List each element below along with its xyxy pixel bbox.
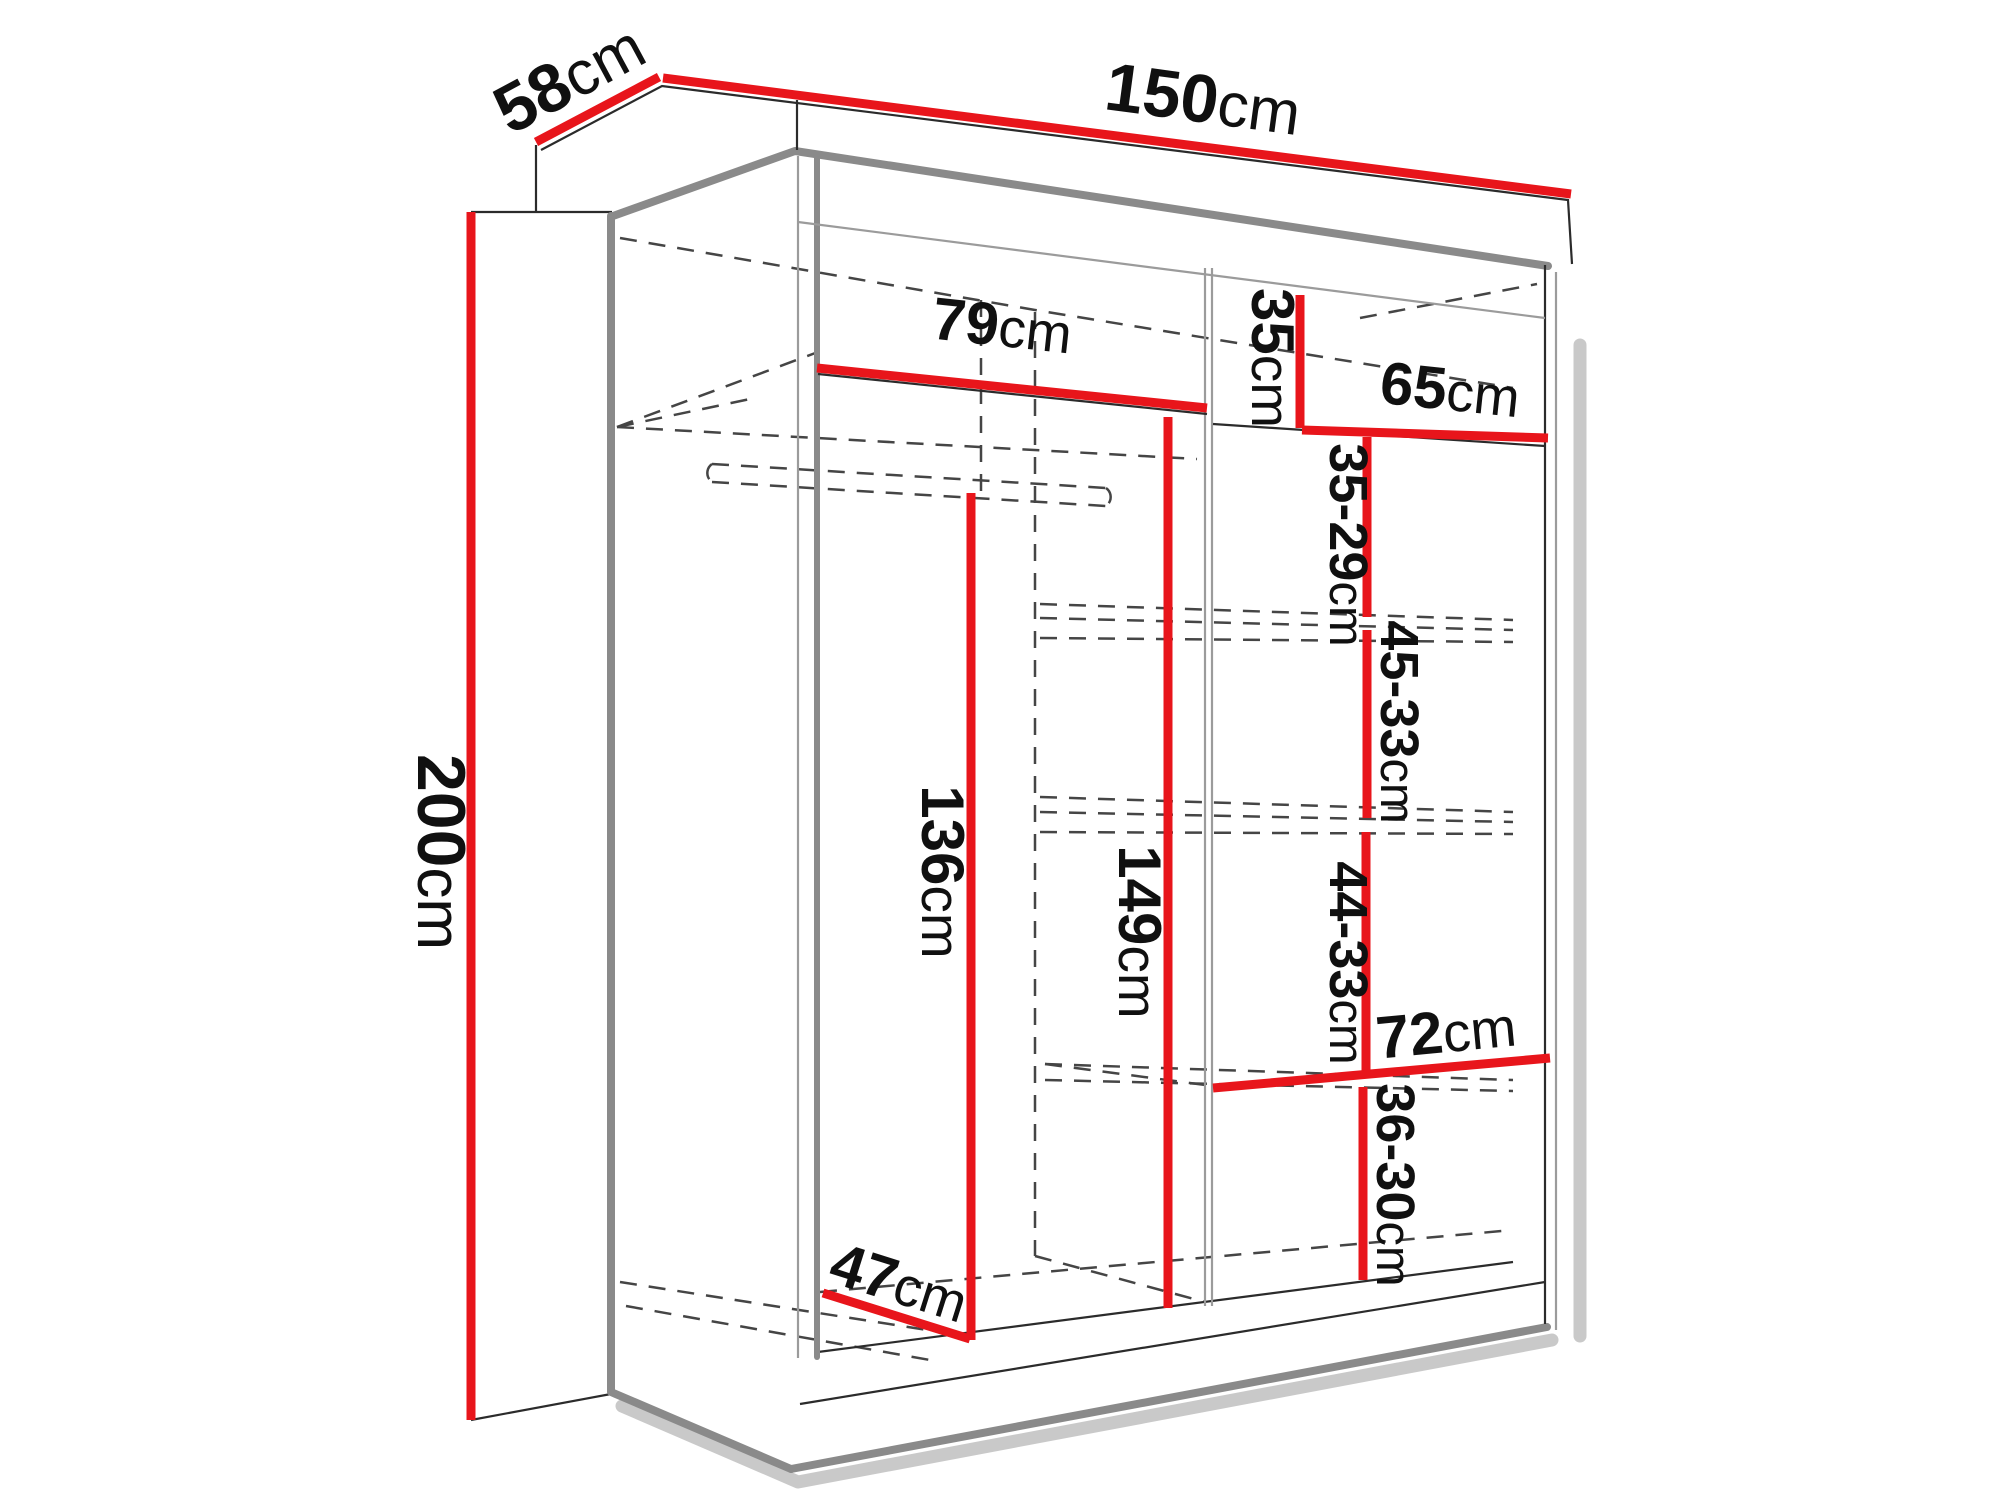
hanging-rod-right-cap	[1106, 488, 1111, 506]
ext-line-bottom	[471, 1394, 611, 1420]
dim-top-right-cubby-height-label: 35cm	[1239, 288, 1306, 428]
cast-shadow	[622, 345, 1580, 1482]
dim-right-gap-middle-label: 45-33cm	[1369, 620, 1429, 823]
hanging-rod-left-cap	[707, 464, 712, 482]
dim-center-interior-height-label: 149cm	[1106, 845, 1173, 1018]
hanging-rod	[707, 464, 1110, 506]
dim-bottom-right-gap-label: 36-30cm	[1365, 1083, 1425, 1286]
bottom-outer-edge	[791, 1327, 1547, 1469]
ceiling-left-depth-edge	[617, 352, 818, 427]
dim-right-gap-upper-label: 35-29cm	[1318, 443, 1378, 646]
ceiling-front-edge	[798, 222, 1545, 318]
ceiling-back-edge	[617, 427, 1197, 459]
dim-right-gap-lower-label: 44-33cm	[1318, 861, 1378, 1064]
dim-height-label: 200cm	[403, 754, 479, 950]
dimension-labels: 58cm 150cm 200cm 79cm 35cm 65cm 35-29cm …	[403, 7, 1523, 1336]
shelf-1-hidden	[1040, 604, 1513, 642]
dim-left-hanging-height-label: 136cm	[909, 785, 976, 958]
dim-left-shelf-width-label: 79cm	[929, 285, 1075, 367]
left-shelf-front-edge	[818, 374, 1207, 414]
dim-right-shelf-width-line	[1302, 430, 1548, 438]
left-outer-edge	[611, 216, 791, 1469]
shelf-2-hidden	[1040, 797, 1513, 834]
diagram-canvas: 58cm 150cm 200cm 79cm 35cm 65cm 35-29cm …	[0, 0, 2000, 1500]
wardrobe-dimension-diagram: 58cm 150cm 200cm 79cm 35cm 65cm 35-29cm …	[0, 0, 2000, 1500]
dim-right-shelf-width-label: 65cm	[1377, 349, 1523, 430]
partition-floor-edge	[1035, 1256, 1205, 1302]
crown-bottom-edge	[613, 151, 1548, 266]
dim-left-shelf-width-line	[817, 368, 1207, 408]
